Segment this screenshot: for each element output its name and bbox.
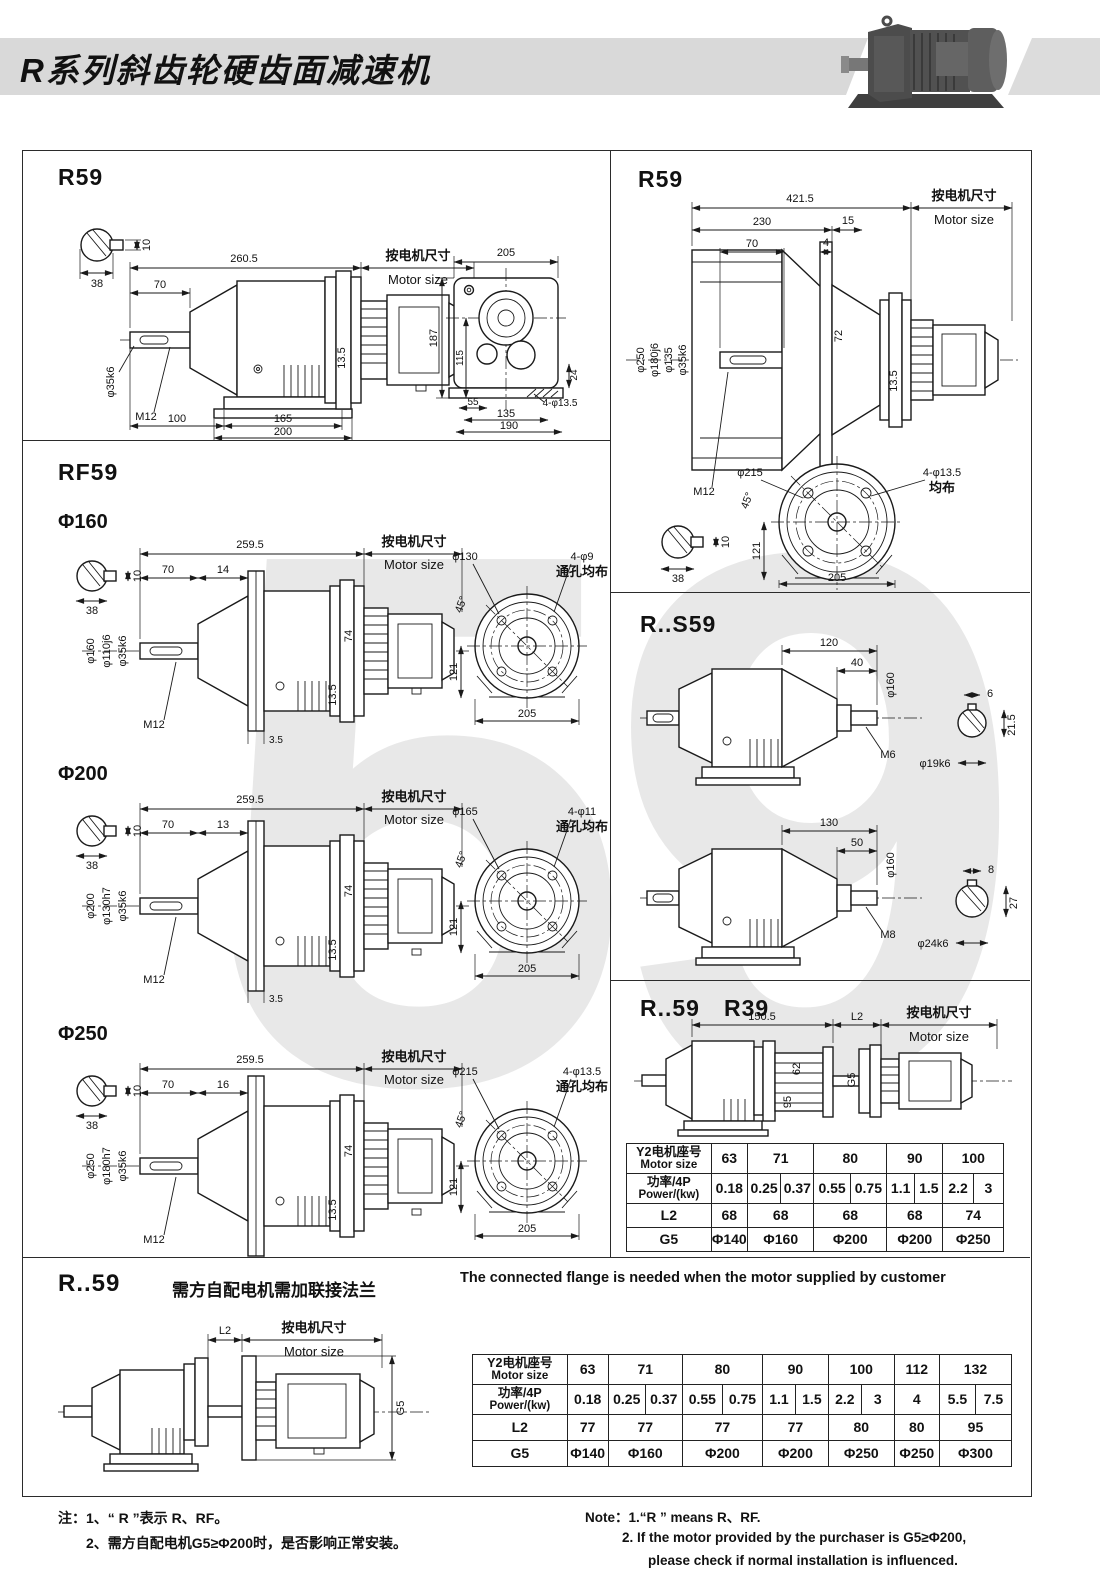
dim-label: M12 bbox=[143, 719, 164, 731]
shaft-end-section: 8 φ24k6 27 bbox=[918, 864, 1021, 950]
dim-label: 205 bbox=[518, 1223, 536, 1235]
dim-label: φ215 bbox=[737, 467, 763, 479]
dim-label: M6 bbox=[880, 749, 895, 761]
flange-view: φ165 4-φ11 通孔均布 45° 121 205 bbox=[448, 806, 608, 980]
dim-label: φ24k6 bbox=[918, 938, 949, 950]
dim-label: φ130h7 bbox=[101, 887, 113, 925]
dim-label: 121 bbox=[448, 663, 460, 681]
table-cell: 63 bbox=[567, 1355, 608, 1385]
dim-label: 121 bbox=[448, 1178, 460, 1196]
table-cell: 68 bbox=[711, 1204, 747, 1228]
table-cell: Φ140 bbox=[711, 1228, 747, 1252]
dim-label: 260.5 bbox=[230, 253, 258, 265]
dim-label: 13.5 bbox=[327, 1199, 339, 1220]
dim-label: M12 bbox=[143, 974, 164, 986]
dim-label: 120 bbox=[820, 637, 838, 649]
dim-label: φ35k6 bbox=[105, 367, 117, 398]
table-cell: Φ300 bbox=[939, 1441, 1011, 1467]
dim-label: 10 bbox=[132, 1085, 144, 1097]
dim-label: 4 bbox=[823, 237, 829, 249]
dim-label: φ35k6 bbox=[117, 636, 129, 667]
drawing-rs59: 120 40 φ160 M6 6 φ19k6 21.5 bbox=[612, 593, 1030, 980]
flange-view: φ215 4-φ13.5 均布 45° 121 205 bbox=[737, 456, 961, 590]
dim-label: 259.5 bbox=[236, 794, 264, 806]
dim-label: 121 bbox=[448, 918, 460, 936]
header-cell: 功率/4PPower/(kw) bbox=[473, 1385, 568, 1415]
dim-label-zh: 按电机尺寸 bbox=[381, 789, 446, 804]
dim-label: φ135 bbox=[663, 347, 675, 373]
dim-label: 70 bbox=[162, 1079, 174, 1091]
header-cell: 功率/4PPower/(kw) bbox=[627, 1174, 712, 1204]
table-r59-r39: Y2电机座号Motor size 63 71 80 90 100 功率/4PPo… bbox=[626, 1143, 1004, 1252]
table-cell: 80 bbox=[682, 1355, 762, 1385]
dim-label: φ19k6 bbox=[920, 758, 951, 770]
dim-label: 14 bbox=[217, 564, 229, 576]
panel-rf59: RF59 Φ160 Φ200 Φ250 38 10 259.5 bbox=[22, 441, 610, 1257]
panel-title: RF59 bbox=[58, 459, 118, 486]
label-en: Motor size bbox=[627, 1159, 711, 1171]
note-en-2: 2. If the motor provided by the purchase… bbox=[622, 1530, 966, 1545]
dim-label: 4-φ9 bbox=[570, 551, 593, 563]
dim-label: 115 bbox=[455, 350, 466, 366]
dim-label: 230 bbox=[753, 216, 771, 228]
table-cell: 0.18 bbox=[567, 1385, 608, 1415]
dim-label: 40 bbox=[851, 657, 863, 669]
dim-label: φ160 bbox=[85, 638, 97, 664]
table-cell: 80 bbox=[894, 1415, 939, 1441]
gearmotor-product-image bbox=[840, 8, 1025, 120]
dim-label: M12 bbox=[135, 411, 156, 423]
dim-label: 6 bbox=[987, 688, 993, 700]
dim-label: 3.5 bbox=[269, 994, 283, 1005]
dim-label: 13.5 bbox=[336, 347, 348, 368]
dim-label-zh: 按电机尺寸 bbox=[931, 188, 996, 203]
table-cell: 1.5 bbox=[795, 1385, 828, 1415]
dim-label-zh: 按电机尺寸 bbox=[906, 1005, 971, 1020]
label-en: Power/(kw) bbox=[473, 1400, 567, 1412]
table-cell: 63 bbox=[711, 1144, 747, 1174]
dim-label: φ200 bbox=[85, 893, 97, 919]
table-cell: 68 bbox=[814, 1204, 887, 1228]
dim-label: 205 bbox=[828, 572, 846, 584]
dim-label: 38 bbox=[91, 278, 103, 290]
dim-label: 10 bbox=[720, 536, 732, 548]
dim-label: 72 bbox=[833, 330, 845, 342]
dim-label: 38 bbox=[672, 573, 684, 585]
table-cell: 95 bbox=[939, 1415, 1011, 1441]
dim-label: 38 bbox=[86, 1120, 98, 1132]
dim-label: 3.5 bbox=[269, 735, 283, 746]
table-cell: 0.18 bbox=[711, 1174, 747, 1204]
dim-label: φ180h7 bbox=[101, 1147, 113, 1185]
dim-label-zh: 通孔均布 bbox=[556, 819, 608, 834]
dim-label: 190 bbox=[500, 420, 518, 432]
panel-r59-side: R59 38 10 bbox=[22, 150, 610, 440]
panel-r59-flange: R59 421.5 按电机尺寸 Motor size 230 bbox=[612, 150, 1030, 592]
drawing-rf59: 38 10 259.5 按电机尺寸 Motor size 70 14 bbox=[22, 441, 610, 1257]
table-cell: Φ200 bbox=[887, 1228, 943, 1252]
shaft-end-section: 6 φ19k6 21.5 bbox=[920, 688, 1019, 770]
rs59-v2: 130 50 φ160 M8 8 φ24k6 27 bbox=[640, 817, 1020, 965]
drawing-r59-flange: 421.5 按电机尺寸 Motor size 230 15 70 4 φ250 … bbox=[612, 150, 1030, 592]
table-cell: Φ160 bbox=[608, 1441, 682, 1467]
dim-label: φ215 bbox=[452, 1066, 478, 1078]
table-cell: Φ250 bbox=[894, 1441, 939, 1467]
label-en: Motor size bbox=[473, 1370, 567, 1382]
dim-label-zh: 按电机尺寸 bbox=[381, 1049, 446, 1064]
note-en-3: please check if normal installation is i… bbox=[648, 1553, 958, 1568]
side-view: 421.5 按电机尺寸 Motor size 230 15 70 4 φ250 … bbox=[626, 188, 1018, 498]
table-cell: 71 bbox=[747, 1144, 814, 1174]
table-cell: Φ160 bbox=[747, 1228, 814, 1252]
dim-label: 24 bbox=[569, 369, 580, 381]
dim-label: 135 bbox=[497, 408, 515, 420]
dim-label: 70 bbox=[162, 564, 174, 576]
dim-label: 13 bbox=[217, 819, 229, 831]
table-cell: 68 bbox=[747, 1204, 814, 1228]
table-cell: 1.1 bbox=[887, 1174, 915, 1204]
dim-label: 74 bbox=[343, 1145, 355, 1157]
dim-label: φ160 bbox=[885, 672, 897, 698]
dim-label-en: Motor size bbox=[384, 1072, 444, 1087]
dim-label: 13.5 bbox=[327, 684, 339, 705]
rf59-250: 38 10 259.5 按电机尺寸 Motor size 70 16 bbox=[76, 1049, 608, 1257]
panel-rs59: R..S59 120 40 φ160 M6 6 bbox=[612, 593, 1030, 980]
divider-right-1 bbox=[610, 592, 1030, 593]
dim-label: 10 bbox=[141, 239, 153, 251]
dim-label: 27 bbox=[1008, 897, 1020, 909]
dim-label: 4-φ13.5 bbox=[563, 1066, 601, 1078]
note-en-1: Note：1.“R ” means R、RF. bbox=[585, 1506, 761, 1526]
dim-label: 130 bbox=[820, 817, 838, 829]
header-cell: G5 bbox=[473, 1441, 568, 1467]
table-cell: 74 bbox=[943, 1204, 1004, 1228]
dim-label-zh: 按电机尺寸 bbox=[381, 534, 446, 549]
dim-label: 16 bbox=[217, 1079, 229, 1091]
shaft-section-icon: 38 10 bbox=[661, 526, 732, 585]
table-cell: 90 bbox=[887, 1144, 943, 1174]
drawing-r59-custom: L2 按电机尺寸 Motor size G5 bbox=[52, 1294, 452, 1490]
table-cell: 5.5 bbox=[939, 1385, 975, 1415]
note-zh-2: 2、需方自配电机G5≥Φ200时，是否影响正常安装。 bbox=[86, 1533, 407, 1553]
table-cell: 2.2 bbox=[943, 1174, 973, 1204]
label-zh: Y2电机座号 bbox=[473, 1357, 567, 1370]
table-cell: 100 bbox=[943, 1144, 1004, 1174]
dim-label: 121 bbox=[751, 542, 763, 560]
header-cell: G5 bbox=[627, 1228, 712, 1252]
table-cell: Φ250 bbox=[943, 1228, 1004, 1252]
panel-title: R..59 bbox=[640, 995, 700, 1022]
dim-label: G5 bbox=[395, 1401, 407, 1416]
dim-label: φ110j6 bbox=[101, 634, 113, 667]
dim-label: 38 bbox=[86, 605, 98, 617]
dim-label: 4-φ13.5 bbox=[923, 467, 961, 479]
dim-label: 74 bbox=[343, 885, 355, 897]
dim-label: 100 bbox=[168, 413, 186, 425]
panel-r59-r39: R..59 R39 150.5 L2 按电机尺寸 Motor size 62 9… bbox=[612, 981, 1030, 1257]
dim-label-zh: 按电机尺寸 bbox=[281, 1320, 346, 1335]
dim-label: φ165 bbox=[452, 806, 478, 818]
dim-label: 74 bbox=[343, 630, 355, 642]
variant-label: Φ160 bbox=[58, 511, 108, 534]
dim-label: 70 bbox=[746, 238, 758, 250]
table-cell: 0.55 bbox=[814, 1174, 850, 1204]
dim-label: M8 bbox=[880, 929, 895, 941]
dim-label: 45° bbox=[739, 491, 756, 511]
dim-label: M12 bbox=[693, 486, 714, 498]
drawing-r59-side: 38 10 260.5 按电机尺寸 Motor size bbox=[22, 150, 610, 440]
rf59-160: 38 10 259.5 按电机尺寸 Motor size 70 14 bbox=[76, 534, 608, 746]
dim-label: 8 bbox=[988, 864, 994, 876]
dim-label: φ35k6 bbox=[117, 1151, 129, 1182]
dim-label-en: Motor size bbox=[384, 812, 444, 827]
dim-label-zh: 均布 bbox=[929, 480, 955, 495]
dim-label: 21.5 bbox=[1006, 714, 1018, 735]
panel-title: R..S59 bbox=[640, 611, 716, 638]
dim-label: 205 bbox=[518, 963, 536, 975]
table-cell: 1.5 bbox=[915, 1174, 943, 1204]
divider-right-2 bbox=[610, 980, 1030, 981]
page-title: R系列斜齿轮硬齿面减速机 bbox=[20, 44, 431, 92]
dim-label-en: Motor size bbox=[388, 272, 448, 287]
dim-label-en: Motor size bbox=[284, 1344, 344, 1359]
shaft-section-icon: 38 10 bbox=[80, 229, 153, 290]
divider-vertical bbox=[610, 150, 611, 1257]
table-cell: 77 bbox=[567, 1415, 608, 1441]
header-cell: L2 bbox=[473, 1415, 568, 1441]
label-zh: Y2电机座号 bbox=[627, 1146, 711, 1159]
table-cell: Φ250 bbox=[828, 1441, 894, 1467]
dim-label: 95 bbox=[782, 1096, 794, 1108]
table-cell: 132 bbox=[939, 1355, 1011, 1385]
table-cell: Φ200 bbox=[814, 1228, 887, 1252]
note-zh-1: 注：1、“ R ”表示 R、RF。 bbox=[58, 1508, 228, 1528]
dim-label: 70 bbox=[162, 819, 174, 831]
header-cell: L2 bbox=[627, 1204, 712, 1228]
table-cell: 0.25 bbox=[747, 1174, 780, 1204]
panel-title: R59 bbox=[58, 164, 103, 191]
dim-label-zh: 按电机尺寸 bbox=[385, 248, 450, 263]
dim-label: 259.5 bbox=[236, 539, 264, 551]
panel-r59-custom-flange: R..59 需方自配电机需加联接法兰 The connected flange … bbox=[22, 1258, 1030, 1494]
variant-label: Φ250 bbox=[58, 1023, 108, 1046]
dim-label: 205 bbox=[518, 708, 536, 720]
dim-label: 38 bbox=[86, 860, 98, 872]
dim-label: φ160 bbox=[885, 852, 897, 878]
dim-label: 62 bbox=[791, 1063, 803, 1075]
dim-label: 13.5 bbox=[888, 370, 900, 391]
dim-label-zh: 通孔均布 bbox=[556, 564, 608, 579]
dim-label: 10 bbox=[132, 825, 144, 837]
table-cell: 112 bbox=[894, 1355, 939, 1385]
dim-label: φ180j6 bbox=[649, 343, 661, 377]
dim-label: 165 bbox=[274, 413, 292, 425]
dim-label-en: Motor size bbox=[909, 1029, 969, 1044]
flange-view: φ130 4-φ9 通孔均布 45° 121 205 bbox=[448, 551, 608, 725]
divider-left-1 bbox=[22, 440, 610, 441]
table-cell: 4 bbox=[894, 1385, 939, 1415]
table-cell: 68 bbox=[887, 1204, 943, 1228]
dim-label: φ35k6 bbox=[677, 345, 689, 376]
table-cell: 77 bbox=[763, 1415, 829, 1441]
table-cell: 80 bbox=[828, 1415, 894, 1441]
table-cell: Φ200 bbox=[763, 1441, 829, 1467]
dim-label-en: Motor size bbox=[384, 557, 444, 572]
table-cell: 0.55 bbox=[682, 1385, 722, 1415]
table-cell: Φ140 bbox=[567, 1441, 608, 1467]
dim-label: 45° bbox=[453, 595, 470, 615]
rf59-200: 38 10 259.5 按电机尺寸 Motor size 70 13 bbox=[76, 789, 608, 1005]
dim-label: 50 bbox=[851, 837, 863, 849]
dim-label: φ250 bbox=[635, 347, 647, 373]
dim-label: 4-φ11 bbox=[568, 806, 596, 818]
dim-label-zh: 通孔均布 bbox=[556, 1079, 608, 1094]
dim-label: 187 bbox=[428, 329, 440, 347]
dim-label: φ130 bbox=[452, 551, 478, 563]
table-cell: 77 bbox=[682, 1415, 762, 1441]
dim-label: 70 bbox=[154, 279, 166, 291]
dim-label: L2 bbox=[219, 1325, 231, 1337]
table-cell: 3 bbox=[861, 1385, 894, 1415]
dim-label: G5 bbox=[846, 1073, 858, 1088]
table-cell: 3 bbox=[973, 1174, 1003, 1204]
dim-label: φ250 bbox=[85, 1153, 97, 1179]
label-zh: 功率/4P bbox=[473, 1387, 567, 1400]
table-cell: 0.37 bbox=[645, 1385, 682, 1415]
dim-label: 259.5 bbox=[236, 1054, 264, 1066]
table-cell: 0.75 bbox=[722, 1385, 762, 1415]
table-cell: Φ200 bbox=[682, 1441, 762, 1467]
dim-label: 10 bbox=[132, 570, 144, 582]
panel-subtitle-en: The connected flange is needed when the … bbox=[460, 1270, 946, 1286]
table-cell: 90 bbox=[763, 1355, 829, 1385]
table-cell: 71 bbox=[608, 1355, 682, 1385]
table-cell: 7.5 bbox=[975, 1385, 1011, 1415]
dim-label: 200 bbox=[274, 426, 292, 438]
panel-title: R59 bbox=[638, 166, 683, 193]
dim-label: φ35k6 bbox=[117, 891, 129, 922]
header-cell: Y2电机座号Motor size bbox=[473, 1355, 568, 1385]
panel-title-2: R39 bbox=[724, 995, 769, 1022]
dim-label: 421.5 bbox=[786, 193, 814, 205]
dim-label: M12 bbox=[143, 1234, 164, 1246]
dim-label: 13.5 bbox=[327, 939, 339, 960]
dim-label: 205 bbox=[497, 247, 515, 259]
dim-label-en: Motor size bbox=[934, 212, 994, 227]
dim-label: 45° bbox=[453, 1110, 470, 1130]
dim-label: 45° bbox=[453, 850, 470, 870]
table-cell: 1.1 bbox=[763, 1385, 796, 1415]
dim-label: 55 bbox=[467, 397, 479, 408]
flange-view: φ215 4-φ13.5 通孔均布 45° 121 205 bbox=[448, 1066, 608, 1240]
table-cell: 77 bbox=[608, 1415, 682, 1441]
divider-bottom bbox=[22, 1257, 1030, 1258]
table-cell: 2.2 bbox=[828, 1385, 861, 1415]
dim-label: 15 bbox=[842, 215, 854, 227]
label-en: Power/(kw) bbox=[627, 1189, 711, 1201]
table-cell: 80 bbox=[814, 1144, 887, 1174]
label-zh: 功率/4P bbox=[627, 1176, 711, 1189]
table-cell: 0.25 bbox=[608, 1385, 645, 1415]
table-r59-custom: Y2电机座号Motor size 63 71 80 90 100 112 132… bbox=[472, 1354, 1012, 1467]
table-cell: 0.37 bbox=[781, 1174, 814, 1204]
dim-label: 4-φ13.5 bbox=[543, 398, 578, 409]
variant-label: Φ200 bbox=[58, 763, 108, 786]
table-cell: 100 bbox=[828, 1355, 894, 1385]
header-cell: Y2电机座号Motor size bbox=[627, 1144, 712, 1174]
dim-label: L2 bbox=[851, 1011, 863, 1023]
rs59-v1: 120 40 φ160 M6 6 φ19k6 21.5 bbox=[640, 637, 1018, 785]
table-cell: 0.75 bbox=[850, 1174, 886, 1204]
side-view: 260.5 按电机尺寸 Motor size 70 13.5 φ35k6 M12… bbox=[105, 248, 480, 440]
